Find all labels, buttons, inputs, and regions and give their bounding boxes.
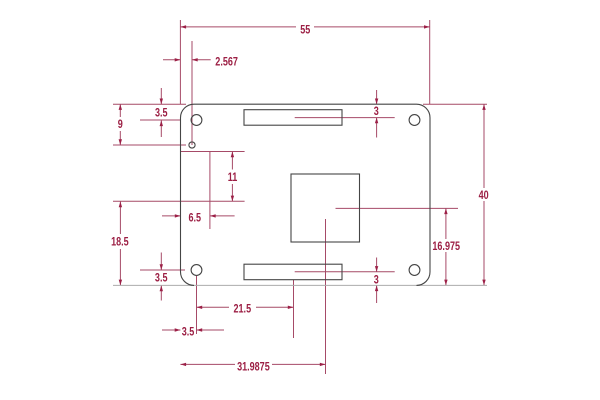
svg-text:16.975: 16.975 bbox=[432, 240, 460, 253]
svg-text:3: 3 bbox=[374, 274, 379, 287]
svg-text:31.9875: 31.9875 bbox=[237, 360, 270, 373]
svg-text:6.5: 6.5 bbox=[189, 211, 202, 224]
svg-text:3.5: 3.5 bbox=[182, 325, 195, 338]
svg-text:11: 11 bbox=[228, 171, 238, 184]
svg-text:3.5: 3.5 bbox=[155, 106, 168, 119]
svg-text:18.5: 18.5 bbox=[111, 236, 129, 249]
svg-text:40: 40 bbox=[479, 189, 489, 202]
svg-text:9: 9 bbox=[118, 118, 123, 131]
svg-text:2.567: 2.567 bbox=[215, 55, 238, 68]
svg-text:21.5: 21.5 bbox=[234, 303, 252, 316]
svg-text:3.5: 3.5 bbox=[155, 271, 168, 284]
svg-text:55: 55 bbox=[300, 23, 310, 36]
svg-text:3: 3 bbox=[374, 105, 379, 118]
